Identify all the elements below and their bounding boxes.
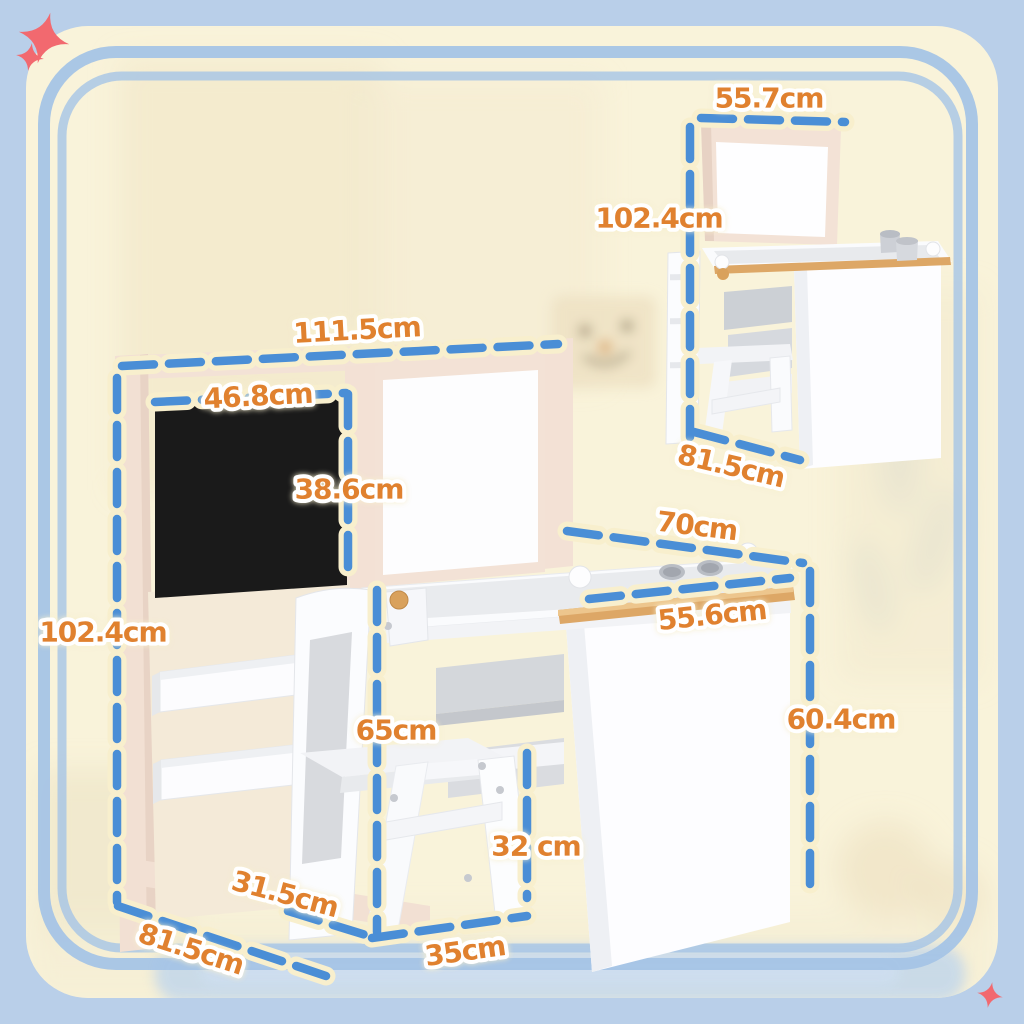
dim-blackboard-height: 38.6cm <box>295 473 404 506</box>
wood-peg <box>390 591 408 609</box>
product-dimension-diagram: 111.5cm 46.8cm 38.6cm 102.4cm 70cm 55.6c… <box>0 0 1024 1024</box>
dim-chair-seat-height: 32 cm <box>491 830 581 863</box>
diagram-canvas: 111.5cm 46.8cm 38.6cm 102.4cm 70cm 55.6c… <box>0 0 1024 1024</box>
whiteboard <box>375 356 545 587</box>
dim-frame-height: 102.4cm <box>39 616 166 649</box>
dim-inset-height: 102.4cm <box>595 202 722 235</box>
dim-chair-back-height: 65cm <box>356 714 437 747</box>
dim-blackboard-width: 46.8cm <box>203 377 313 416</box>
dim-desk-height: 60.4cm <box>787 703 896 736</box>
rail-ball-knob <box>569 566 591 588</box>
dim-inset-width: 55.7cm <box>715 82 824 115</box>
dim-frame-width: 111.5cm <box>293 310 422 350</box>
